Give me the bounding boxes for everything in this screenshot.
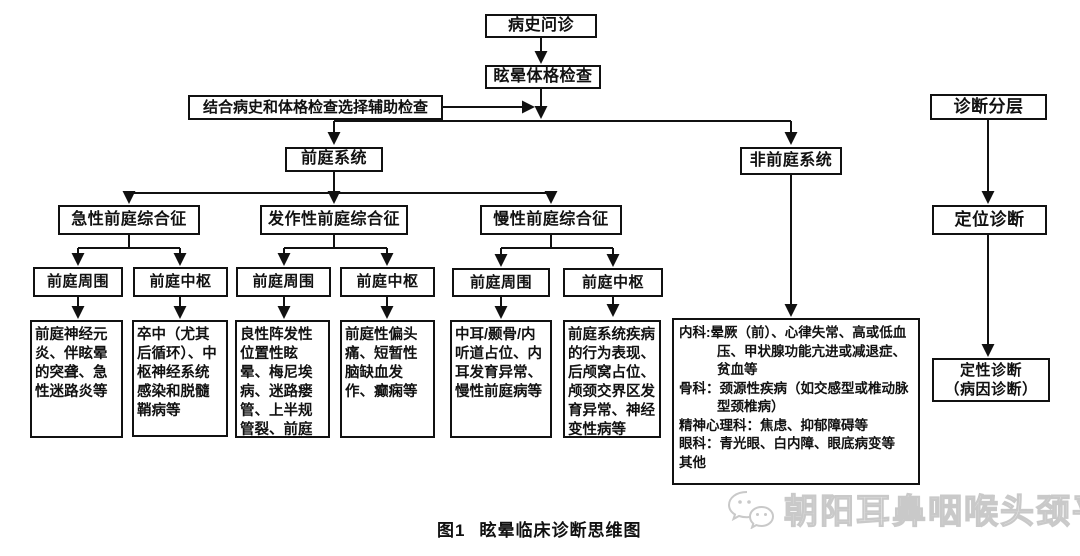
node-vestibular-central-2: 前庭中枢 [340, 267, 435, 297]
dept-label: 骨科： [679, 381, 720, 396]
node-chronic-vestibular-syndrome: 慢性前庭综合征 [480, 205, 622, 235]
dept-label: 其他 [679, 455, 706, 470]
figure-title: 眩晕临床诊断思维图 [479, 521, 641, 540]
detail-box-non-vestibular: 内科:晕厥（前）、心律失常、高或低血压、甲状腺功能亢进或减退症、贫血等 骨科：颈… [672, 318, 920, 485]
dept-label: 精神心理科： [679, 418, 760, 433]
detail-box-chronic-peripheral: 中耳/颞骨/内听道占位、内耳发育异常、慢性前庭病等 [450, 320, 552, 438]
dept-text: 青光眼、白内障、眼底病变等 [720, 436, 896, 451]
node-auxiliary-exam: 结合病史和体格检查选择辅助检查 [188, 95, 443, 120]
qualitative-diagnosis-line1: 定性诊断 [960, 361, 1022, 381]
wechat-icon [726, 489, 778, 529]
detail-box-episodic-peripheral: 良性阵发性位置性眩晕、梅尼埃病、迷路瘘管、上半规管裂、前庭阵发症等 [235, 320, 330, 438]
detail-box-episodic-central: 前庭性偏头痛、短暂性脑缺血发作、癫痫等 [340, 320, 435, 438]
node-vestibular-peripheral-2: 前庭周围 [236, 267, 331, 297]
node-vestibular-peripheral-1: 前庭周围 [33, 267, 123, 297]
dept-text: 焦虑、抑郁障碍等 [760, 418, 868, 433]
node-non-vestibular-system: 非前庭系统 [740, 147, 842, 175]
node-qualitative-diagnosis: 定性诊断 （病因诊断） [932, 358, 1050, 402]
node-localization-diagnosis: 定位诊断 [932, 205, 1047, 235]
detail-box-chronic-central: 前庭系统疾病的行为表现、后颅窝占位、颅颈交界区发育异常、神经变性病等 [563, 320, 661, 438]
dept-text: 晕厥（前）、心律失常、高或低血压、甲状腺功能亢进或减退症、贫血等 [711, 325, 907, 377]
node-vestibular-system: 前庭系统 [285, 147, 383, 172]
node-episodic-vestibular-syndrome: 发作性前庭综合征 [260, 205, 408, 235]
dept-text: 颈源性疾病（如交感型或椎动脉型颈椎病） [717, 381, 909, 415]
dept-orthopedics: 骨科：颈源性疾病（如交感型或椎动脉型颈椎病） [679, 380, 913, 417]
node-physical-exam: 眩晕体格检查 [485, 65, 601, 89]
node-history-inquiry: 病史问诊 [485, 14, 597, 38]
flowchart-canvas: 病史问诊 眩晕体格检查 结合病史和体格检查选择辅助检查 前庭系统 非前庭系统 诊… [0, 0, 1080, 556]
dept-ophthalmology: 眼科：青光眼、白内障、眼底病变等 [679, 435, 913, 454]
detail-box-acute-peripheral: 前庭神经元炎、伴眩晕的突聋、急性迷路炎等 [30, 320, 123, 438]
node-vestibular-central-1: 前庭中枢 [133, 267, 228, 297]
dept-internal-medicine: 内科:晕厥（前）、心律失常、高或低血压、甲状腺功能亢进或减退症、贫血等 [679, 324, 913, 380]
qualitative-diagnosis-line2: （病因诊断） [944, 380, 1037, 400]
figure-number: 图1 [437, 521, 465, 540]
dept-label: 内科: [679, 325, 711, 340]
figure-caption: 图1眩晕临床诊断思维图 [437, 516, 641, 541]
watermark-text: 朝阳耳鼻咽喉头颈平台 [784, 484, 1080, 533]
node-vestibular-central-3: 前庭中枢 [563, 268, 663, 297]
dept-label: 眼科： [679, 436, 720, 451]
detail-box-acute-central: 卒中（尤其后循环）、中枢神经系统感染和脱髓鞘病等 [132, 320, 228, 437]
dept-other: 其他 [679, 454, 913, 473]
node-diagnosis-stratification: 诊断分层 [930, 94, 1047, 120]
node-acute-vestibular-syndrome: 急性前庭综合征 [58, 205, 200, 235]
watermark: 朝阳耳鼻咽喉头颈平台 [726, 484, 1080, 533]
dept-psychiatry: 精神心理科：焦虑、抑郁障碍等 [679, 417, 913, 436]
node-vestibular-peripheral-3: 前庭周围 [452, 268, 550, 297]
